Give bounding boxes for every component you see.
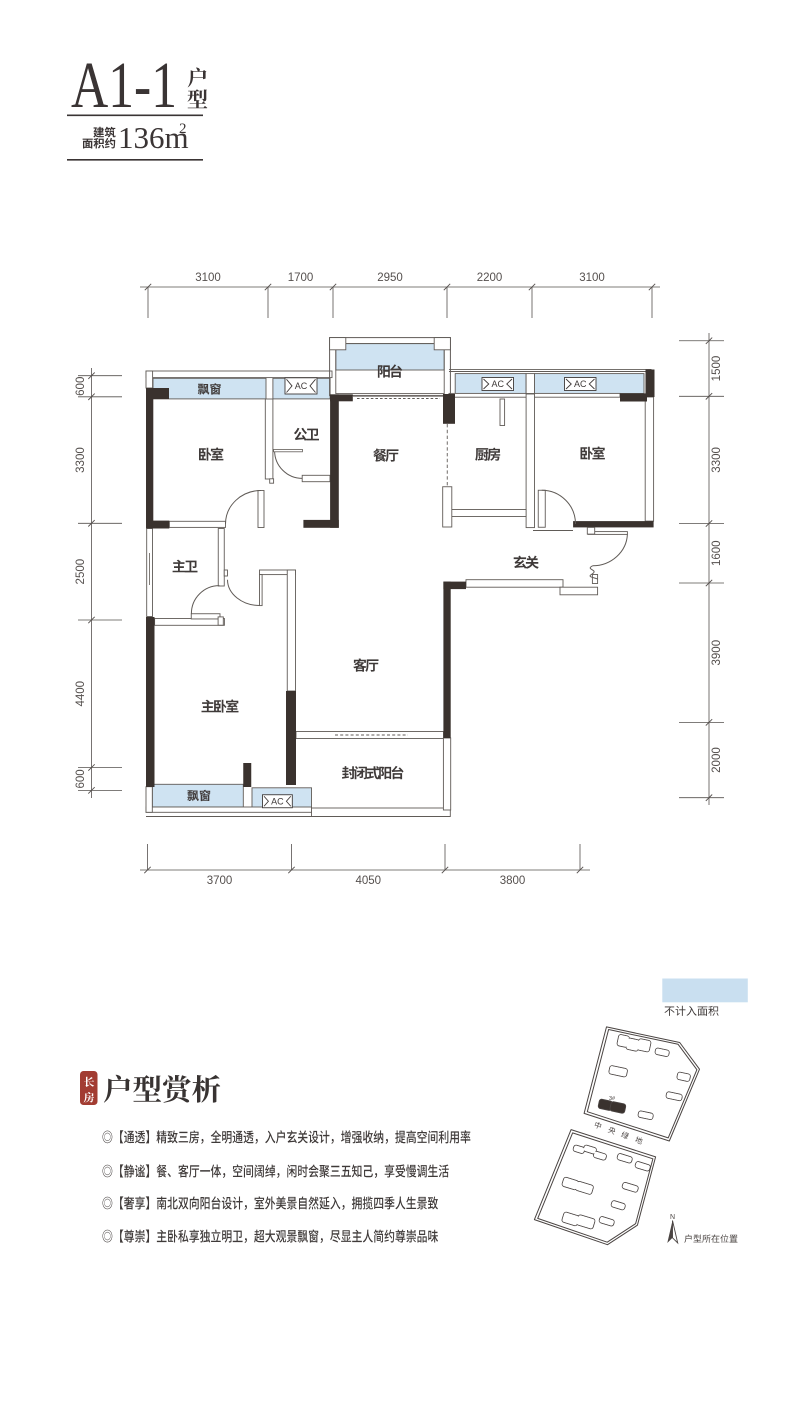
svg-text:3100: 3100 bbox=[579, 272, 605, 284]
svg-text:600: 600 bbox=[75, 769, 87, 788]
svg-text:4050: 4050 bbox=[355, 875, 381, 887]
svg-text:1600: 1600 bbox=[711, 540, 723, 566]
svg-text:3#: 3# bbox=[609, 1096, 616, 1102]
svg-text:3300: 3300 bbox=[75, 447, 87, 473]
svg-text:600: 600 bbox=[75, 377, 87, 396]
svg-text:1500: 1500 bbox=[711, 356, 723, 382]
svg-text:3300: 3300 bbox=[711, 447, 723, 473]
svg-text:2500: 2500 bbox=[75, 559, 87, 585]
svg-text:AC: AC bbox=[491, 379, 504, 389]
svg-text:4400: 4400 bbox=[75, 681, 87, 707]
svg-text:3100: 3100 bbox=[195, 272, 221, 284]
svg-text:2000: 2000 bbox=[711, 747, 723, 773]
svg-text:2: 2 bbox=[179, 121, 187, 137]
svg-text:AC: AC bbox=[574, 379, 587, 389]
svg-text:3900: 3900 bbox=[711, 640, 723, 666]
svg-text:2200: 2200 bbox=[477, 272, 503, 284]
svg-text:1700: 1700 bbox=[288, 272, 314, 284]
svg-text:A1-1: A1-1 bbox=[71, 49, 177, 122]
svg-text:N: N bbox=[670, 1214, 675, 1221]
svg-text:2950: 2950 bbox=[377, 272, 403, 284]
svg-text:AC: AC bbox=[271, 796, 284, 806]
svg-text:AC: AC bbox=[295, 381, 308, 391]
svg-text:3700: 3700 bbox=[207, 875, 233, 887]
svg-text:3800: 3800 bbox=[500, 875, 526, 887]
